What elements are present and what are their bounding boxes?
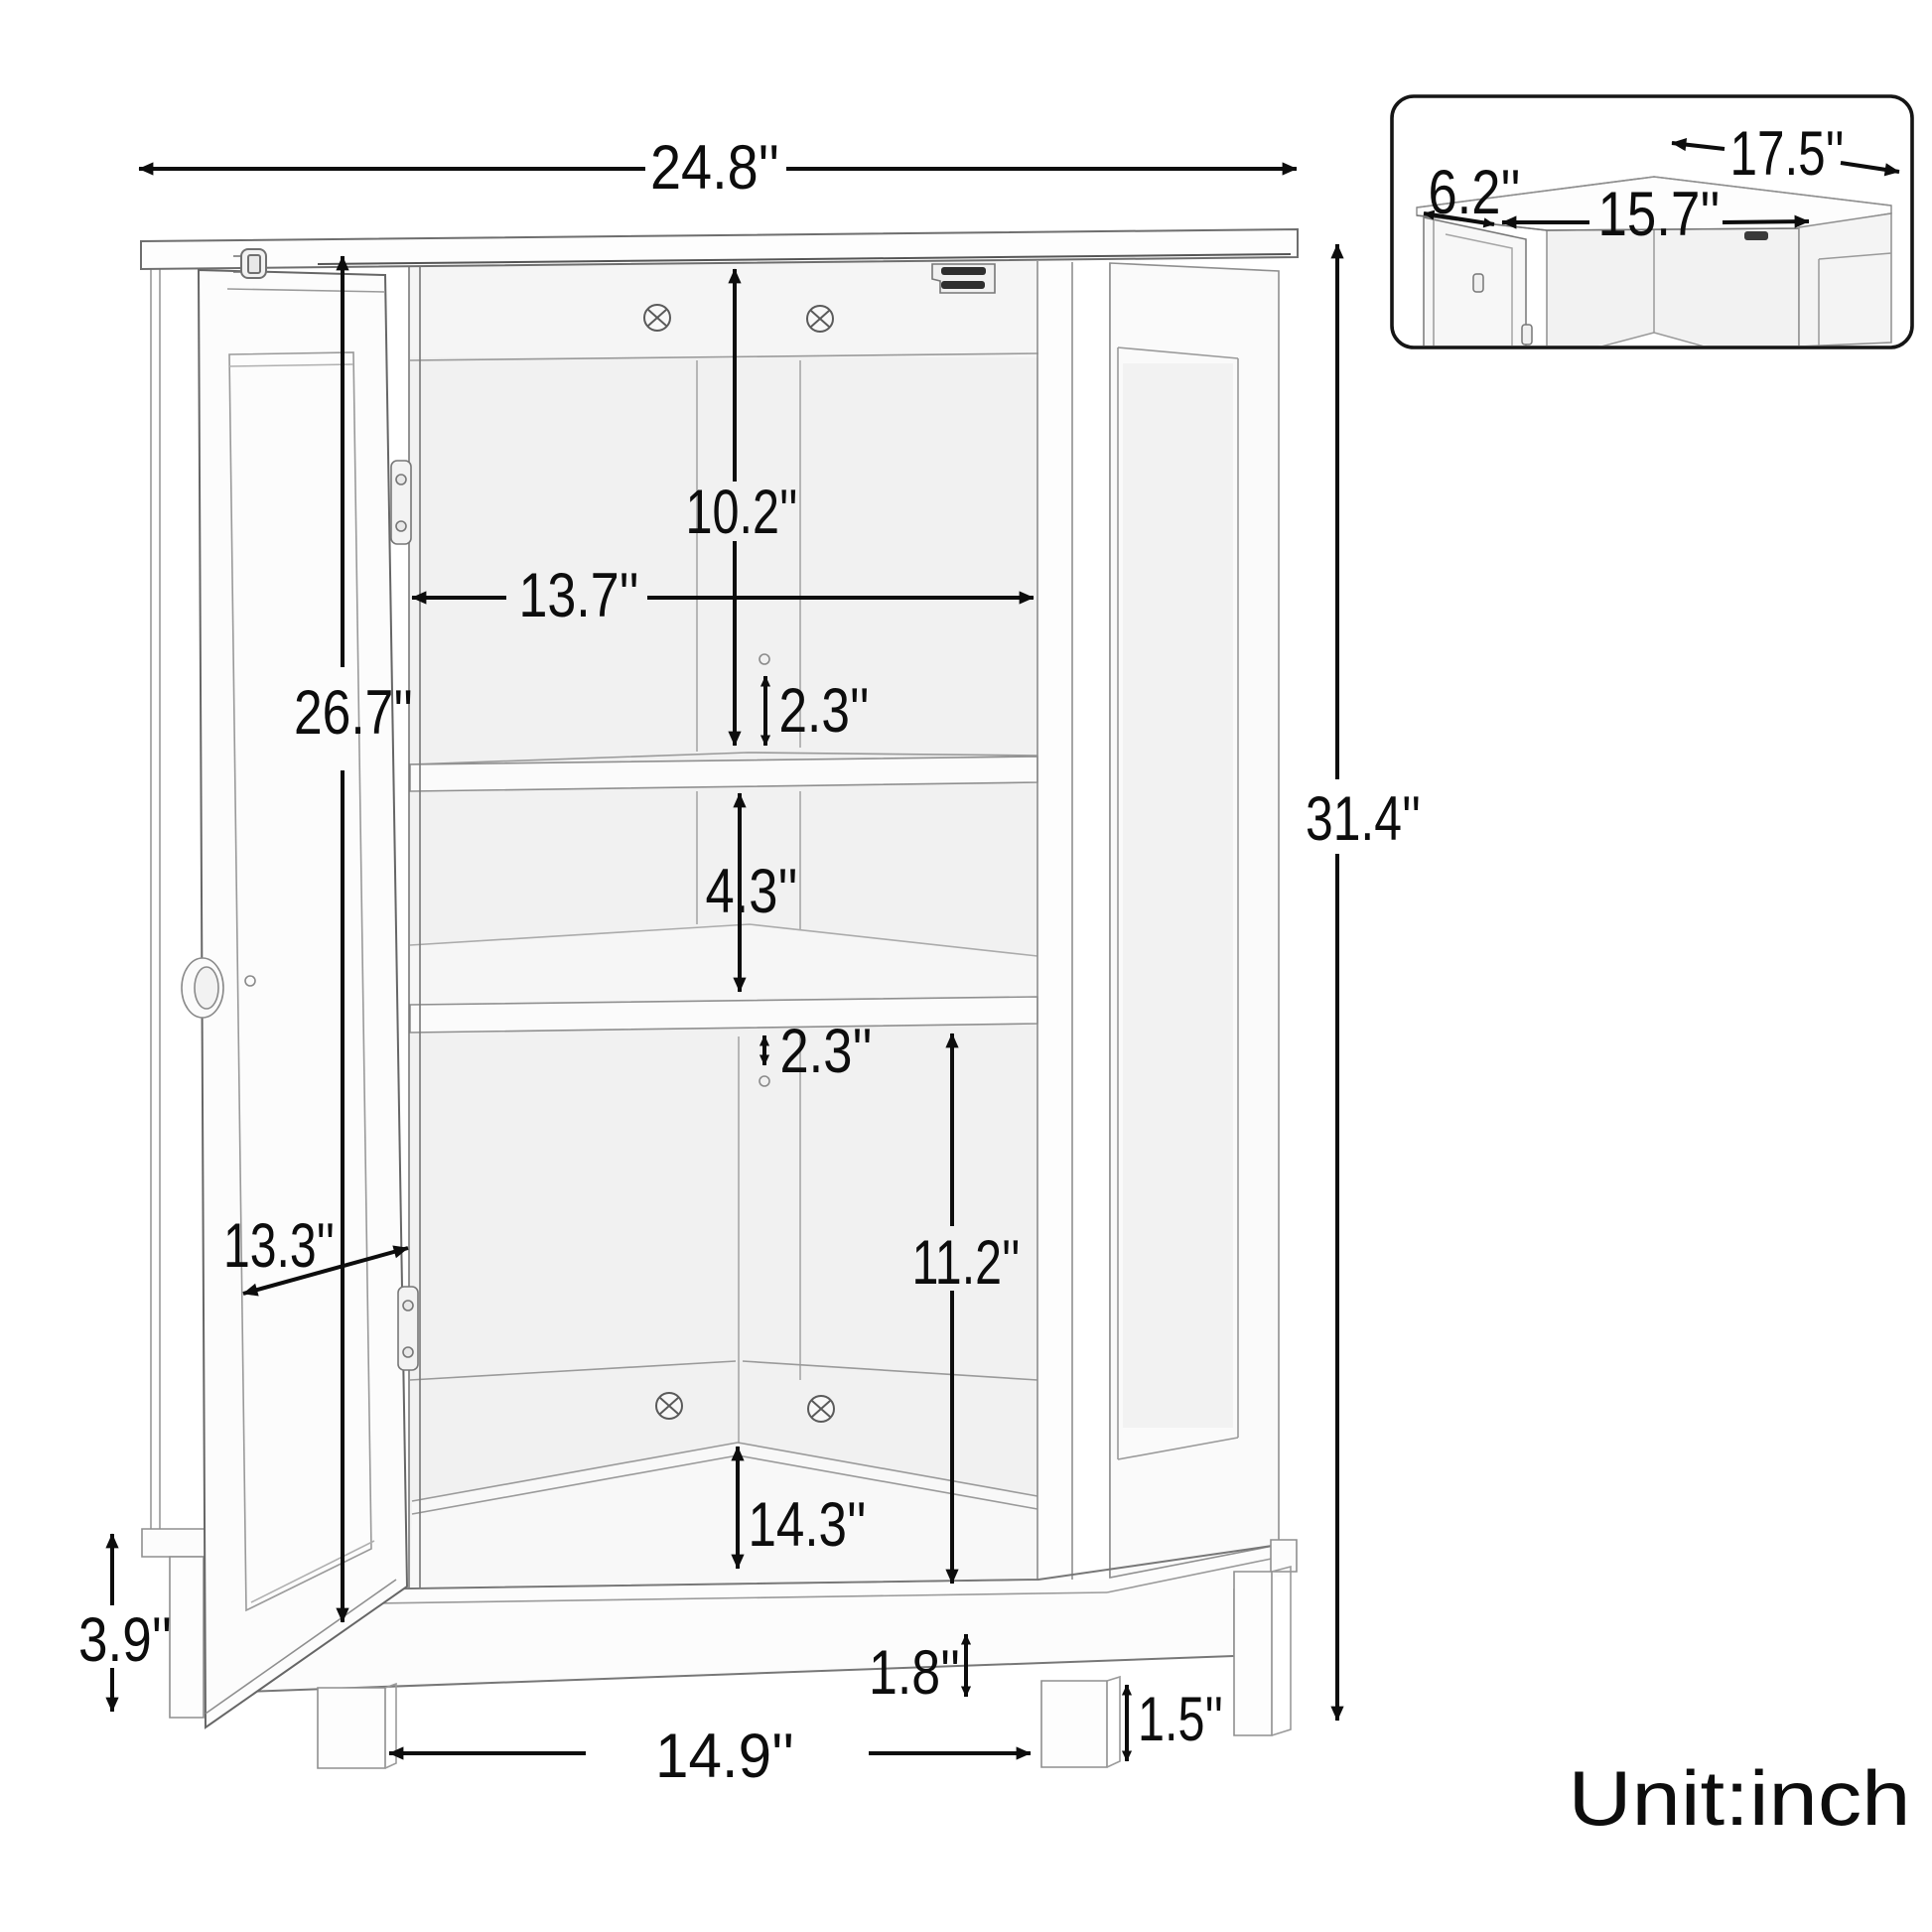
svg-text:14.3'': 14.3'': [749, 1490, 867, 1560]
svg-text:6.2'': 6.2'': [1429, 158, 1521, 227]
svg-text:2.3'': 2.3'': [779, 676, 870, 746]
svg-text:3.9'': 3.9'': [78, 1605, 172, 1675]
svg-text:10.2'': 10.2'': [686, 478, 798, 547]
svg-text:4.3'': 4.3'': [706, 857, 798, 926]
svg-text:14.9'': 14.9'': [655, 1722, 794, 1791]
svg-text:13.7'': 13.7'': [519, 561, 639, 630]
svg-text:1.5'': 1.5'': [1138, 1685, 1223, 1754]
svg-text:17.5'': 17.5'': [1730, 119, 1845, 189]
svg-text:Unit:inch: Unit:inch: [1569, 1754, 1911, 1842]
svg-text:15.7'': 15.7'': [1598, 180, 1721, 249]
svg-text:31.4'': 31.4'': [1306, 784, 1421, 854]
svg-text:2.3'': 2.3'': [780, 1017, 873, 1086]
svg-text:24.8'': 24.8'': [650, 133, 779, 203]
svg-text:11.2'': 11.2'': [912, 1228, 1021, 1298]
svg-text:13.3'': 13.3'': [223, 1211, 335, 1281]
svg-text:1.8'': 1.8'': [869, 1638, 960, 1708]
svg-text:26.7'': 26.7'': [294, 678, 413, 748]
